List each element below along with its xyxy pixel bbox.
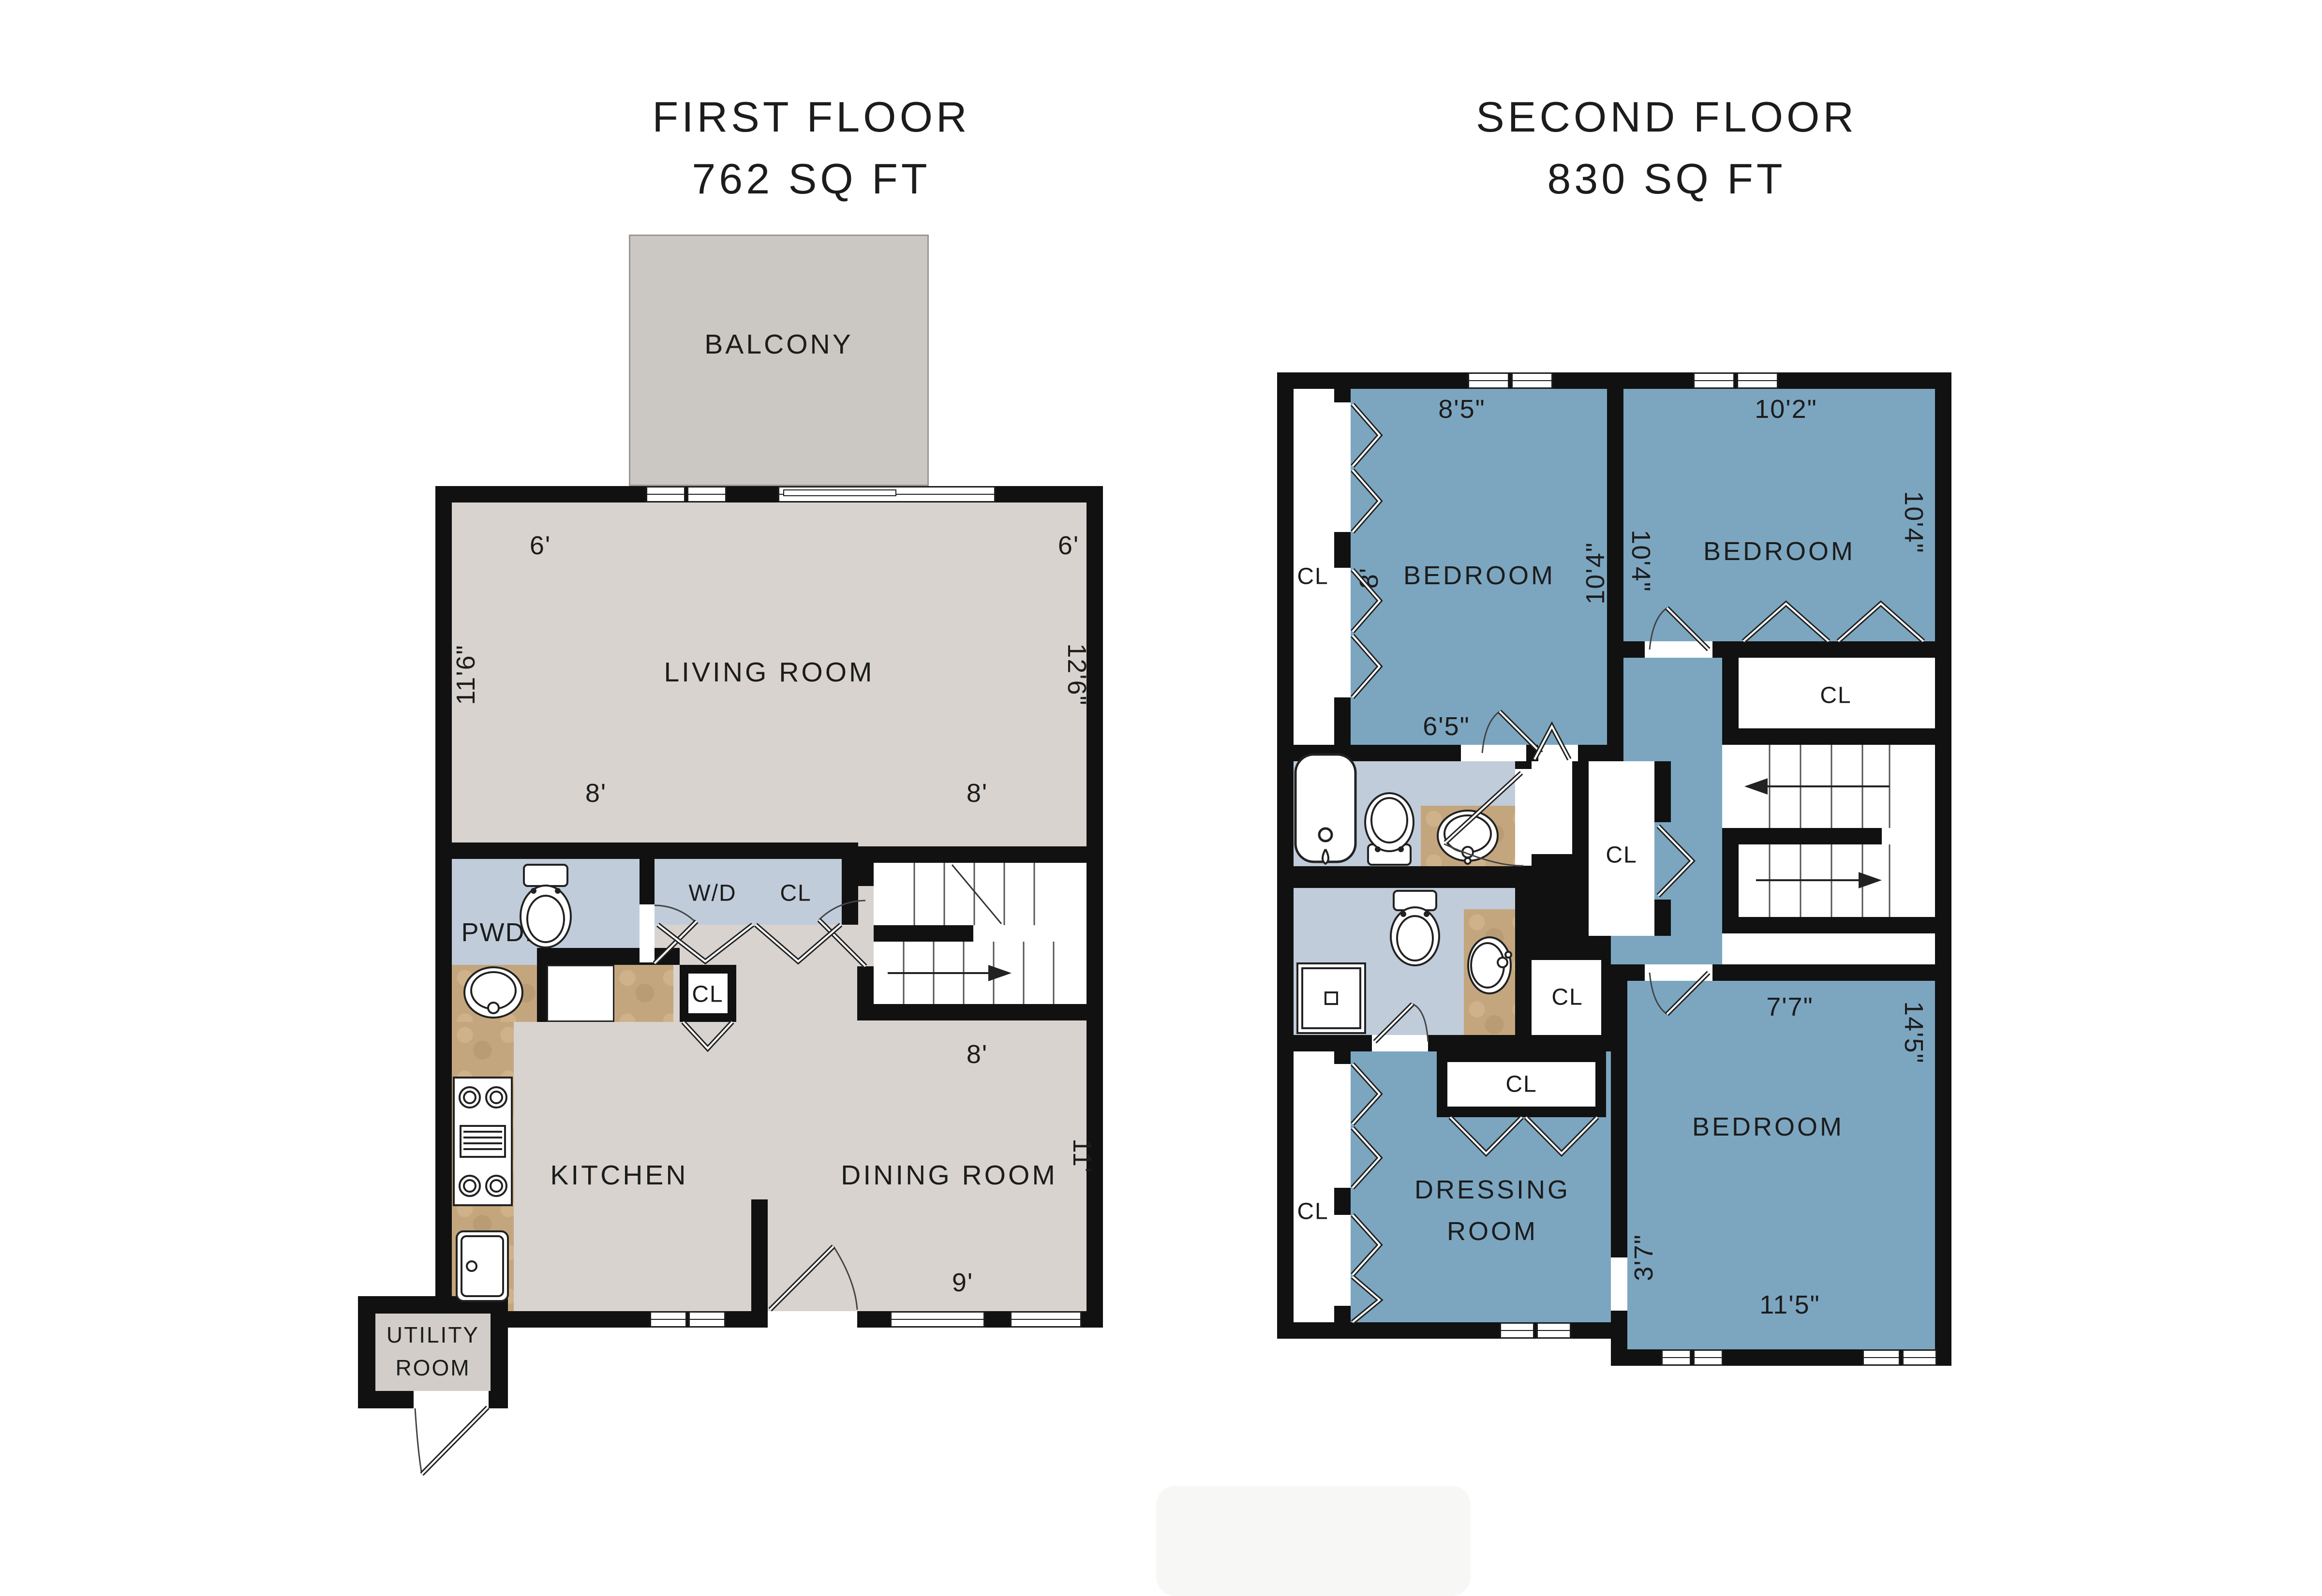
dim-bed3-left: 3'7" (1629, 1234, 1659, 1281)
door-opening (640, 904, 655, 962)
kitchen-cabinet (547, 965, 614, 1022)
window (1010, 1311, 1082, 1328)
window (1693, 372, 1735, 389)
wd-label: W/D (688, 880, 736, 907)
wall (1515, 936, 1611, 960)
dim-bed1-left: 8' (1354, 567, 1384, 589)
window (890, 1311, 985, 1328)
dim-dining-right: 11' (1067, 1138, 1097, 1173)
wall (537, 965, 547, 1022)
dim-bed1-right: 10'4" (1580, 542, 1610, 605)
wall (1294, 866, 1515, 888)
dim-stairs-bottom: 8' (967, 1039, 988, 1069)
cl-label: CL (1297, 563, 1328, 590)
wall (842, 842, 858, 925)
window (1511, 372, 1553, 389)
dim-bed2-left: 10'4" (1626, 530, 1656, 592)
door-opening (414, 1391, 489, 1408)
hall-stair-landing (1623, 658, 1722, 761)
bedroom2 (1623, 389, 1935, 641)
dressing-room-label-2: ROOM (1447, 1216, 1538, 1246)
wall (1334, 532, 1351, 568)
door-opening (1645, 641, 1712, 658)
window (687, 486, 727, 502)
dim-balcony-left: 6' (530, 531, 551, 561)
utility-label-1: UTILITY (387, 1322, 479, 1348)
living-room-label: LIVING ROOM (664, 656, 874, 688)
cl-label: CL (692, 981, 723, 1008)
cl-label: CL (1297, 1198, 1328, 1225)
door-opening (1538, 745, 1578, 761)
window (1862, 1349, 1900, 1366)
first-floor-title: FIRST FLOOR (652, 92, 970, 142)
wall (435, 486, 452, 1328)
sliding-door (778, 486, 996, 502)
utility-label-2: ROOM (395, 1355, 470, 1381)
window (1468, 372, 1509, 389)
pwdr-vanity-counter (452, 965, 537, 1022)
window (1536, 1322, 1571, 1339)
hall-closet-small (1532, 761, 1572, 854)
dressing-room-label-1: DRESSING (1414, 1175, 1570, 1205)
door-opening (1611, 1257, 1627, 1311)
dim-dining-bottom: 9' (952, 1268, 973, 1298)
window (1902, 1349, 1937, 1366)
door-opening (1645, 964, 1712, 981)
dim-bed1-top: 8'5" (1438, 394, 1486, 424)
bath1-vanity (1421, 806, 1515, 866)
wall (1334, 1306, 1351, 1322)
wall (1601, 960, 1611, 1035)
watermark (1156, 1486, 1471, 1596)
wall (1654, 761, 1671, 822)
wall (1334, 1051, 1351, 1064)
kitchen-label: KITCHEN (550, 1159, 688, 1191)
cl-label: CL (1606, 842, 1637, 869)
window (650, 1311, 687, 1328)
wall (1722, 728, 1935, 745)
dim-bed2-right: 10'4" (1899, 491, 1929, 554)
window (1500, 1322, 1534, 1339)
cl-label: CL (1820, 682, 1851, 709)
window (688, 1311, 726, 1328)
wall (751, 1199, 768, 1328)
dim-closet-band: 8' (585, 778, 607, 808)
window (646, 486, 685, 502)
wall (1277, 372, 1951, 389)
floorplan-page: { "colors": { "wall": "#111111", "floor_… (0, 0, 2322, 1596)
wall (537, 948, 680, 965)
bedroom3-label: BEDROOM (1692, 1112, 1844, 1142)
first-floor-subtitle: 762 SQ FT (692, 154, 930, 204)
stair-landing-wall (874, 925, 973, 942)
dim-bed2-top: 10'2" (1755, 394, 1817, 424)
wall (857, 846, 1103, 863)
wall (435, 842, 842, 859)
wall (1935, 372, 1951, 1366)
window (1693, 1349, 1723, 1366)
dim-stairs-top: 8' (967, 778, 988, 808)
wall (1334, 1188, 1351, 1215)
door-opening (1461, 745, 1526, 761)
stair-landing-wall (1739, 828, 1882, 844)
balcony-label: BALCONY (704, 328, 853, 360)
door-opening (1515, 769, 1532, 866)
balcony (629, 235, 929, 486)
door-opening (768, 1311, 857, 1328)
wall (1334, 389, 1351, 402)
wall (1654, 900, 1671, 936)
wall (1087, 486, 1103, 1328)
dim-bed3-right: 14'5" (1899, 1001, 1929, 1064)
second-floor-subtitle: 830 SQ FT (1547, 154, 1786, 204)
wall (857, 846, 874, 886)
wall (1277, 1035, 1611, 1051)
cl-label: CL (780, 880, 811, 907)
window (1737, 372, 1778, 389)
wall (1722, 917, 1935, 933)
dim-hall: 7'7" (1766, 992, 1814, 1022)
kitchen-counter-top (614, 965, 673, 1022)
wall (857, 1004, 1103, 1020)
dim-living-right: 12'6" (1062, 643, 1092, 706)
door-opening (1372, 1035, 1428, 1051)
kitchen-counter-left (452, 1022, 514, 1311)
dim-balcony-right: 6' (1058, 531, 1079, 561)
wall (1334, 697, 1351, 745)
wall (435, 486, 1103, 502)
second-floor-title: SECOND FLOOR (1476, 92, 1857, 142)
cl-label: CL (1551, 984, 1583, 1011)
bedroom2-label: BEDROOM (1703, 536, 1855, 566)
window (1661, 1349, 1691, 1366)
wd-closet (655, 859, 842, 925)
dim-bed1-bottom: 6'5" (1423, 711, 1470, 741)
pwdr-label: PWDR (461, 917, 545, 947)
dim-bed3-bottom: 11'5" (1759, 1290, 1820, 1320)
dining-room-label: DINING ROOM (841, 1159, 1057, 1191)
wall (1277, 372, 1294, 1339)
bath2-vanity (1464, 909, 1515, 1035)
bedroom1-label: BEDROOM (1403, 561, 1555, 591)
fixtures-overlay (0, 0, 2322, 1596)
cl-label: CL (1505, 1071, 1537, 1098)
closet-strip-bottom (1294, 1051, 1334, 1322)
dim-living-left: 11'6" (451, 644, 481, 705)
